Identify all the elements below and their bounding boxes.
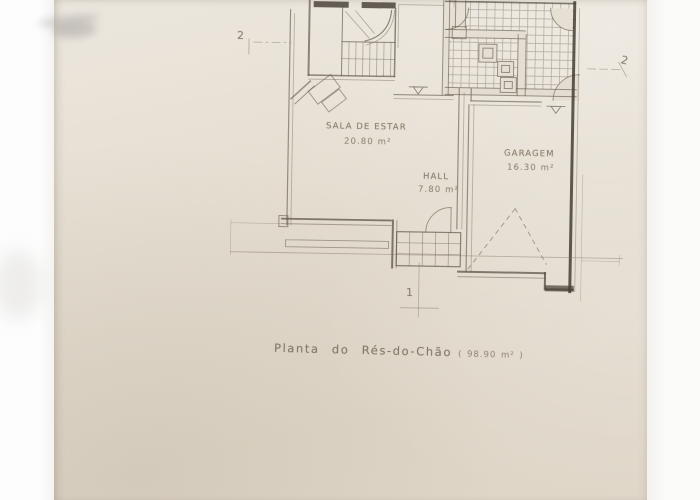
room-area-garagem: 16.30 m² xyxy=(507,163,555,174)
scanner-margin-left xyxy=(0,0,56,500)
scanner-margin-right xyxy=(646,0,700,500)
room-area-sala: 20.80 m² xyxy=(344,137,392,148)
paper-sheet xyxy=(54,0,647,500)
scanned-page: SALA DE ESTAR 20.80 m² GARAGEM 16.30 m² … xyxy=(0,0,700,500)
section-marker-bottom: 1 xyxy=(406,286,413,299)
room-area-hall: 7.80 m² xyxy=(418,185,459,196)
room-label-sala: SALA DE ESTAR xyxy=(326,121,407,132)
section-marker-left: 2 xyxy=(237,29,244,42)
room-label-garagem: GARAGEM xyxy=(504,149,555,160)
drawing-title-area: ( 98.90 m² ) xyxy=(458,349,524,361)
room-label-hall: HALL xyxy=(423,172,449,182)
